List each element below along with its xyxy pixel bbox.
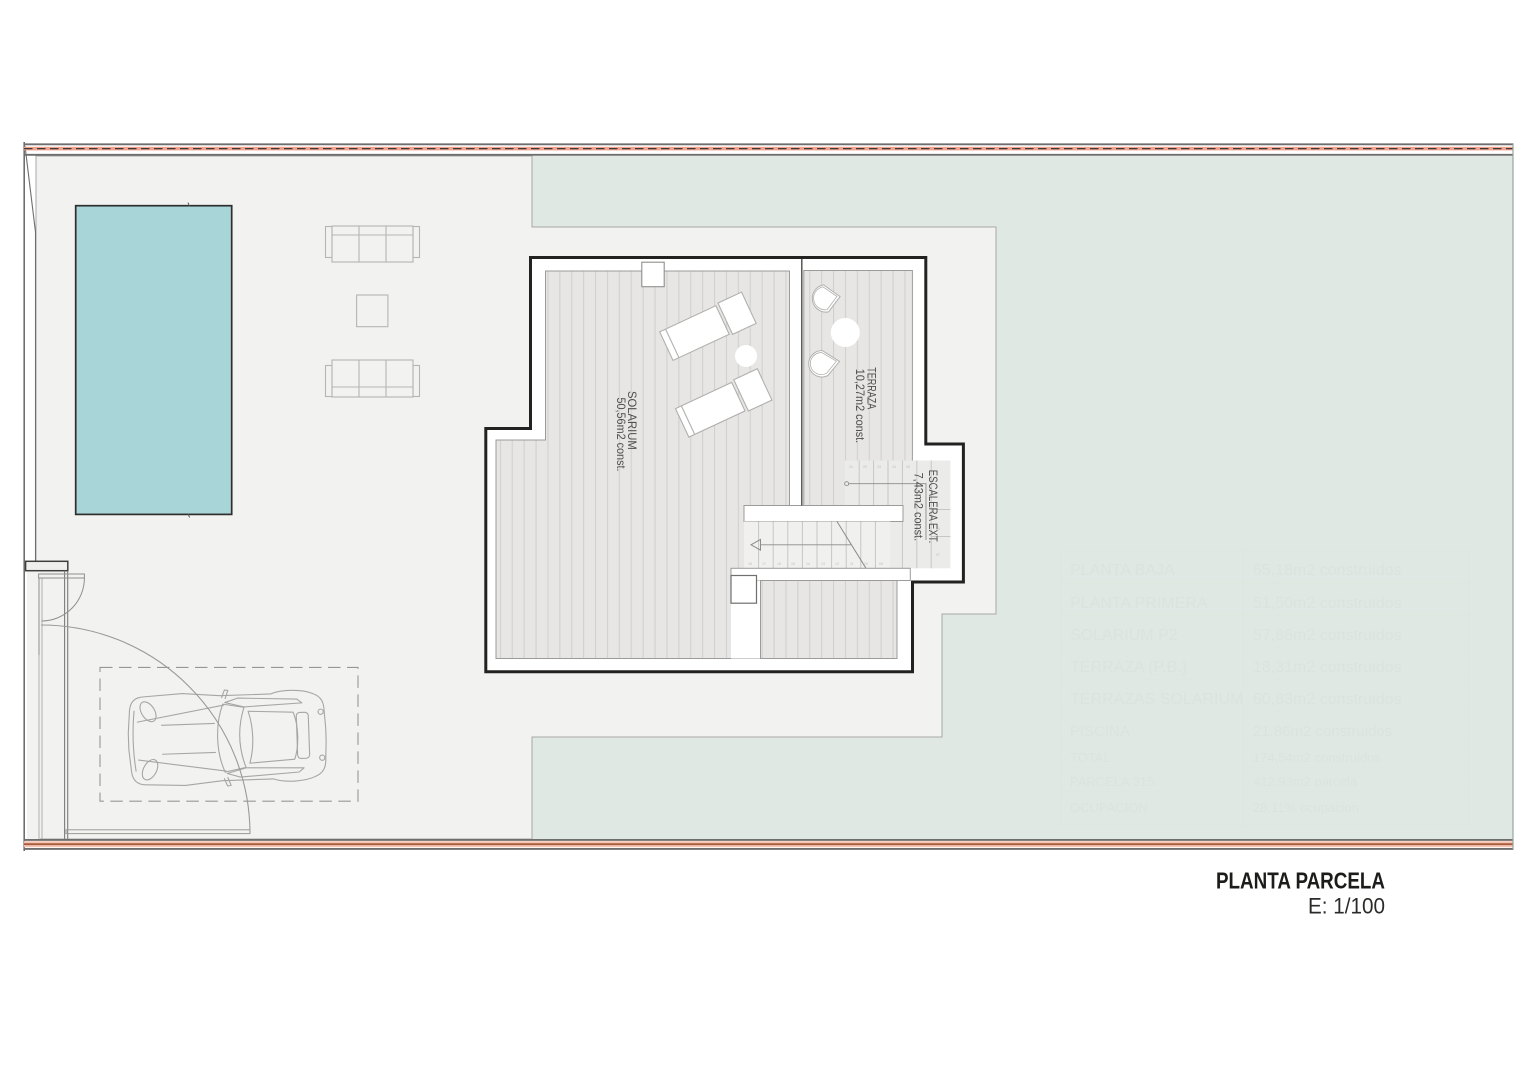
svg-text:TOTAL: TOTAL bbox=[1070, 750, 1111, 765]
svg-text:07: 07 bbox=[936, 553, 940, 557]
svg-text:13: 13 bbox=[821, 562, 825, 566]
svg-text:16: 16 bbox=[777, 562, 781, 566]
svg-text:TERRAZA (P.B.): TERRAZA (P.B.) bbox=[1070, 659, 1187, 676]
svg-text:11: 11 bbox=[850, 562, 854, 566]
svg-text:21: 21 bbox=[849, 465, 853, 469]
svg-text:65,18m2 construidos: 65,18m2 construidos bbox=[1253, 562, 1402, 579]
svg-text:PARCELA 315: PARCELA 315 bbox=[1070, 774, 1154, 789]
svg-text:50,56m2 const.: 50,56m2 const. bbox=[614, 398, 628, 472]
svg-text:28,11% ocupacion: 28,11% ocupacion bbox=[1253, 800, 1359, 815]
svg-text:60,83m2 construidos: 60,83m2 construidos bbox=[1253, 691, 1402, 708]
svg-text:25: 25 bbox=[906, 465, 910, 469]
svg-text:PLANTA BAJA: PLANTA BAJA bbox=[1070, 562, 1175, 579]
svg-text:ESCALERA EXT.: ESCALERA EXT. bbox=[926, 470, 940, 544]
svg-text:174,54m2 construidos: 174,54m2 construidos bbox=[1253, 750, 1381, 765]
svg-text:SOLARIUM P2: SOLARIUM P2 bbox=[1070, 627, 1178, 644]
svg-text:PLANTA PARCELA: PLANTA PARCELA bbox=[1216, 868, 1385, 894]
svg-text:18: 18 bbox=[748, 562, 752, 566]
svg-text:412,93m2 parcela: 412,93m2 parcela bbox=[1253, 774, 1358, 789]
svg-text:10,27m2 const.: 10,27m2 const. bbox=[853, 369, 867, 443]
svg-text:7,43m2 const.: 7,43m2 const. bbox=[911, 473, 925, 541]
svg-text:12: 12 bbox=[835, 562, 839, 566]
svg-text:E: 1/100: E: 1/100 bbox=[1308, 894, 1385, 919]
svg-text:PISCINA: PISCINA bbox=[1070, 723, 1130, 740]
svg-text:24: 24 bbox=[892, 465, 896, 469]
svg-text:22: 22 bbox=[863, 465, 867, 469]
svg-text:TERRAZAS SOLARIUM: TERRAZAS SOLARIUM bbox=[1070, 691, 1243, 708]
svg-text:15: 15 bbox=[791, 562, 795, 566]
svg-text:OCUPACION: OCUPACION bbox=[1070, 800, 1148, 815]
svg-text:PLANTA PRIMERA: PLANTA PRIMERA bbox=[1070, 595, 1208, 612]
svg-text:51,50m2 construidos: 51,50m2 construidos bbox=[1253, 595, 1402, 612]
svg-text:17: 17 bbox=[762, 562, 766, 566]
svg-text:23: 23 bbox=[877, 465, 881, 469]
svg-text:57,86m2 construidos: 57,86m2 construidos bbox=[1253, 627, 1402, 644]
svg-text:14: 14 bbox=[806, 562, 810, 566]
svg-text:09: 09 bbox=[879, 562, 883, 566]
svg-text:21,86m2 construidos: 21,86m2 construidos bbox=[1253, 723, 1392, 740]
svg-text:18,31m2 construidos: 18,31m2 construidos bbox=[1253, 659, 1402, 676]
